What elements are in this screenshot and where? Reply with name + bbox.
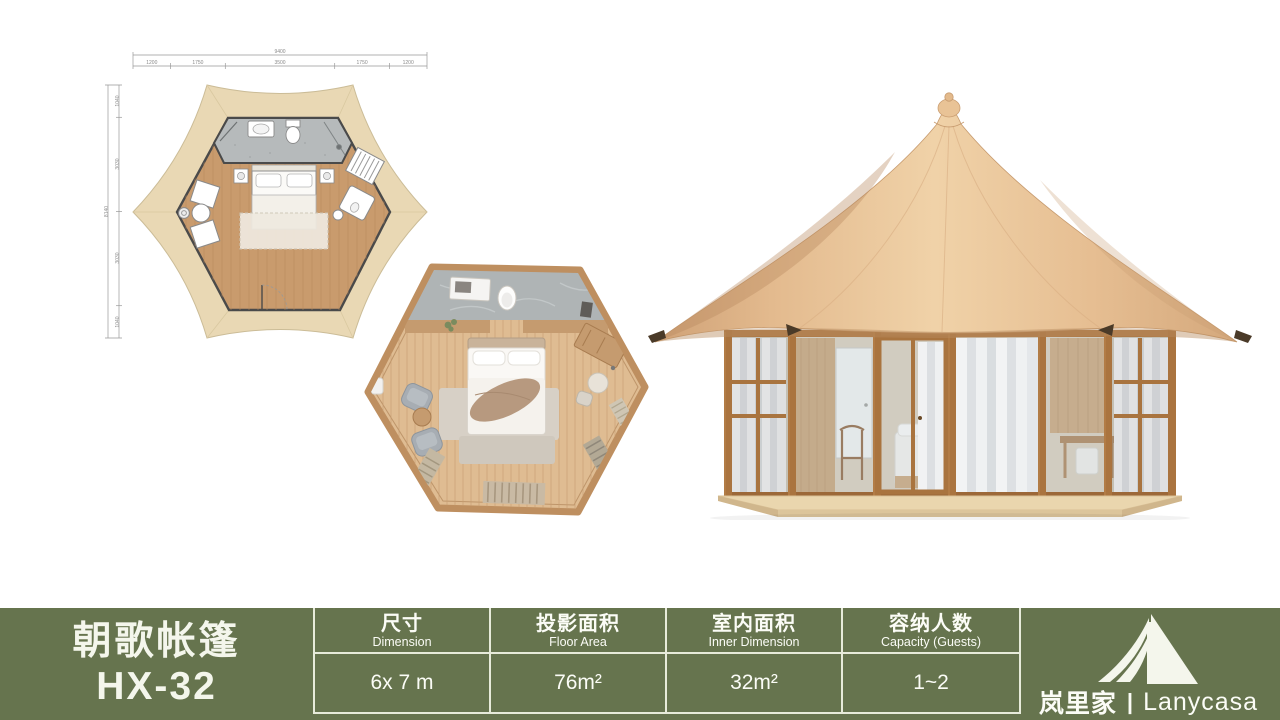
svg-text:3030: 3030 <box>115 158 121 169</box>
spec-label-cn: 尺寸 <box>381 613 423 635</box>
sink-basin <box>253 124 269 134</box>
product-name: 朝歌帐篷 <box>72 619 240 665</box>
svg-text:8140: 8140 <box>104 206 110 217</box>
svg-text:1750: 1750 <box>192 60 203 66</box>
brand-logo-block: 岚里家 | Lanycasa <box>1017 608 1280 720</box>
spec-bar: 朝歌帐篷 HX-32 尺寸 Dimension 6x 7 m 投影面积 Floo… <box>0 608 1280 720</box>
rug <box>240 213 328 249</box>
bathroom-vanity <box>449 277 490 301</box>
rug-lower <box>459 436 555 464</box>
spec-label-en: Inner Dimension <box>708 635 799 650</box>
tent-render-image <box>640 80 1260 520</box>
deck-platform <box>710 496 1190 520</box>
spec-label-cn: 投影面积 <box>536 613 620 635</box>
spec-column-capacity: 容纳人数 Capacity (Guests) 1~2 <box>843 608 1019 712</box>
product-slide: 9400 1200 1750 3500 1750 1200 8140 1040 … <box>0 0 1280 720</box>
spec-table: 尺寸 Dimension 6x 7 m 投影面积 Floor Area 76m²… <box>313 608 1021 714</box>
svg-text:9400: 9400 <box>274 49 285 55</box>
svg-text:1750: 1750 <box>357 60 368 66</box>
product-title-block: 朝歌帐篷 HX-32 <box>0 608 313 720</box>
roof-finial <box>945 93 953 101</box>
spec-column-dimension: 尺寸 Dimension 6x 7 m <box>315 608 491 712</box>
svg-text:1200: 1200 <box>403 60 414 66</box>
shower-fixture <box>580 301 593 317</box>
brand-text: 岚里家 | Lanycasa <box>1039 684 1258 720</box>
spec-header: 投影面积 Floor Area <box>491 608 665 654</box>
spec-value: 76m² <box>491 654 665 712</box>
stool <box>333 210 343 220</box>
spec-column-floor-area: 投影面积 Floor Area 76m² <box>491 608 667 712</box>
brand-name-en: Lanycasa <box>1143 688 1258 717</box>
bathroom-toilet <box>498 286 516 310</box>
wall-frames <box>724 330 1176 498</box>
spec-label-en: Floor Area <box>549 635 607 650</box>
spec-label-en: Dimension <box>372 635 431 650</box>
render-floorplan-image <box>355 250 655 530</box>
spec-value: 6x 7 m <box>315 654 489 712</box>
tent-logo-icon <box>1094 612 1204 688</box>
product-model: HX-32 <box>96 665 217 709</box>
svg-text:1040: 1040 <box>115 95 121 106</box>
spec-header: 室内面积 Inner Dimension <box>667 608 841 654</box>
svg-text:1040: 1040 <box>115 316 121 327</box>
svg-text:3030: 3030 <box>115 252 121 263</box>
small-table <box>588 373 608 393</box>
spec-label-cn: 室内面积 <box>712 613 796 635</box>
spec-header: 尺寸 Dimension <box>315 608 489 654</box>
spec-column-inner-dimension: 室内面积 Inner Dimension 32m² <box>667 608 843 712</box>
bathroom-toilet <box>286 120 300 144</box>
spec-value: 1~2 <box>843 654 1019 712</box>
spec-label-cn: 容纳人数 <box>889 613 973 635</box>
svg-text:3500: 3500 <box>274 60 285 66</box>
spec-header: 容纳人数 Capacity (Guests) <box>843 608 1019 654</box>
roof-cap <box>938 99 960 117</box>
bed <box>464 338 546 434</box>
side-table <box>413 408 431 426</box>
spec-value: 32m² <box>667 654 841 712</box>
svg-text:1200: 1200 <box>146 60 157 66</box>
brand-divider: | <box>1127 689 1133 715</box>
edge-mat-bottom <box>483 481 546 505</box>
spec-label-en: Capacity (Guests) <box>881 635 981 650</box>
brand-name-cn: 岚里家 <box>1039 684 1117 720</box>
